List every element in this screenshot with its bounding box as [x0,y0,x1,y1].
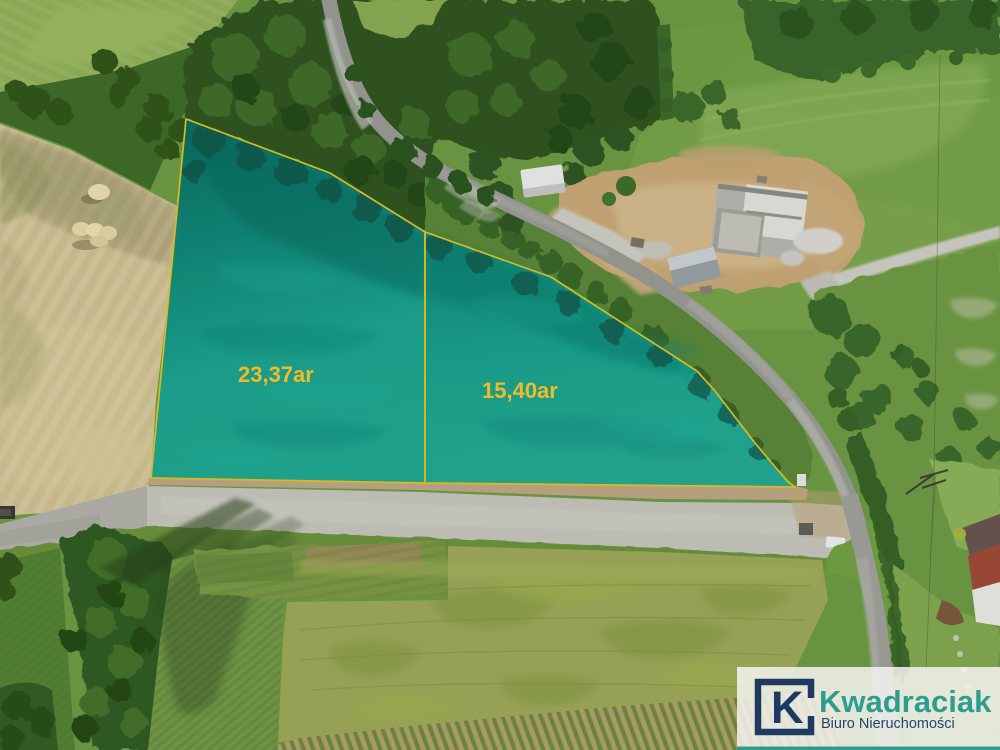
svg-text:Biuro Nieruchomości: Biuro Nieruchomości [821,716,955,732]
svg-text:Kwadraciak: Kwadraciak [819,684,992,719]
svg-text:15,40ar: 15,40ar [482,378,558,403]
svg-text:K: K [771,682,804,733]
svg-text:23,37ar: 23,37ar [238,362,314,387]
